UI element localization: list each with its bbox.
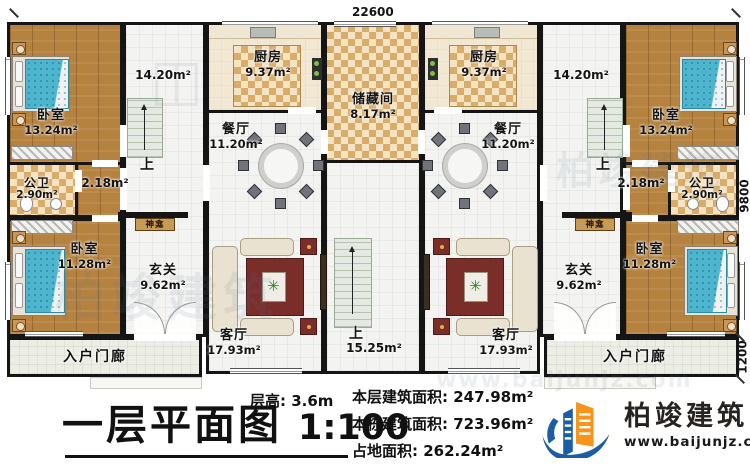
chair [422, 160, 433, 171]
dimension-tick [9, 8, 19, 18]
pillow [727, 283, 735, 308]
door-gap [434, 107, 462, 114]
chair [313, 160, 324, 171]
label-bath-l: 公卫 2.90m² [11, 177, 63, 202]
chair [431, 184, 447, 200]
door-gap [203, 165, 210, 201]
chair [238, 160, 249, 171]
door-gap [668, 170, 675, 192]
label-storage: 储藏间 8.17m² [335, 93, 411, 120]
door-gap [92, 215, 118, 222]
window [25, 331, 83, 337]
page-title: 一层平面图 [62, 403, 282, 448]
brand-text: 柏竣建筑 www.baijunjz.com [624, 402, 750, 451]
label-dining-r: 餐厅 11.20m² [477, 123, 539, 150]
chair [299, 132, 315, 148]
door-gap [288, 107, 316, 114]
window [739, 262, 745, 320]
title-underline [65, 455, 348, 458]
label-living-l: 客厅 17.93m² [200, 329, 268, 356]
shrine-left: 神龛 [135, 218, 175, 231]
stove-icon [312, 58, 322, 80]
mattress [25, 59, 69, 109]
chair [431, 132, 447, 148]
label-bedroom-tl: 卧室 13.24m² [13, 109, 89, 136]
end-table [300, 318, 317, 335]
label-hall-area-l: 14.20m² [130, 69, 196, 82]
door-gap [540, 165, 547, 201]
label-bedroom-br: 卧室 11.28m² [612, 243, 687, 270]
label-foyer-r: 玄关 9.62m² [546, 264, 612, 291]
floorplan-canvas: 神龛 神龛 [0, 0, 750, 468]
dimension-tick [735, 374, 745, 384]
stove-icon [428, 58, 438, 80]
pillow [15, 253, 23, 278]
end-table [300, 238, 317, 255]
tv-icon [320, 254, 327, 310]
door-gap [632, 160, 658, 167]
dimension-right-upper: 9800 [738, 179, 750, 212]
nightstand [723, 42, 737, 55]
bed [679, 56, 737, 112]
window [5, 262, 11, 320]
stair-arrow-icon [604, 110, 605, 150]
window [230, 368, 302, 374]
pillow [15, 61, 23, 82]
nightstand [723, 319, 737, 332]
plant-icon: ✳ [469, 279, 482, 294]
label-bath-r: 公卫 2.90m² [676, 177, 728, 202]
chair [459, 198, 470, 209]
label-porch-l: 入户门廊 [40, 350, 150, 366]
tv-icon [423, 254, 430, 310]
sofa [212, 246, 238, 332]
window [739, 57, 745, 115]
entry-step-left [90, 377, 202, 389]
door-gap [92, 160, 118, 167]
chair [275, 123, 286, 134]
window [5, 57, 11, 115]
chair [299, 184, 315, 200]
wardrobe [677, 146, 739, 160]
label-stair-center-area: 15.25m² [346, 342, 402, 355]
window [334, 21, 396, 27]
window [448, 368, 520, 374]
entry-door-gap-left [134, 334, 196, 341]
label-bedroom-bl: 卧室 11.28m² [47, 243, 122, 270]
sofa [456, 238, 510, 256]
chair [483, 184, 499, 200]
label-dining-l: 餐厅 11.20m² [205, 123, 267, 150]
nightstand [12, 231, 26, 244]
label-kitchen-r: 厨房 9.37m² [446, 51, 522, 78]
round-table [259, 144, 303, 188]
entry-step-right [544, 377, 656, 389]
pillow [15, 283, 23, 308]
shrine-right: 神龛 [575, 218, 615, 231]
stat-floor-height: 层高: 3.6m [250, 390, 333, 411]
dimension-tick [731, 8, 741, 18]
plant-icon: ✳ [267, 279, 280, 294]
label-foyer-l: 玄关 9.62m² [130, 264, 196, 291]
chair [247, 184, 263, 200]
chair [459, 123, 470, 134]
pillow [726, 86, 734, 107]
brand-logo: 柏竣建筑 www.baijunjz.com [536, 394, 750, 458]
label-corridor-l: 2.18m² [80, 177, 130, 190]
chair [275, 198, 286, 209]
window [667, 331, 725, 337]
nightstand [723, 231, 737, 244]
stair-arrow-icon [144, 110, 145, 150]
label-kitchen-l: 厨房 9.37m² [230, 51, 306, 78]
label-hall-area-r: 14.20m² [548, 69, 614, 82]
pillow [15, 86, 23, 107]
brand-logo-icon [536, 394, 616, 458]
label-bedroom-tr: 卧室 13.24m² [628, 109, 704, 136]
brand-name: 柏竣建筑 [624, 402, 750, 432]
stat-floor-area: 本层建筑面积: 247.98m² [352, 386, 533, 407]
sofa [240, 238, 294, 256]
dimension-right-lower: 1200 [736, 340, 750, 373]
stat-building-area: 本栋建筑面积: 723.96m² [352, 413, 533, 434]
entry-door-gap-right [554, 334, 616, 341]
end-table [433, 238, 450, 255]
door-gap [120, 125, 127, 157]
end-table [433, 318, 450, 335]
door-gap [632, 215, 658, 222]
label-porch-r: 入户门廊 [580, 350, 690, 366]
nightstand [723, 113, 737, 126]
pillow [727, 253, 735, 278]
dimension-top-width: 22600 [352, 5, 394, 19]
stair-arrow-icon [352, 252, 353, 314]
mattress [687, 249, 727, 313]
chair [497, 160, 508, 171]
bed [684, 246, 738, 316]
kitchen-sink-icon [250, 27, 276, 38]
pillow [726, 61, 734, 82]
label-stair-up-left: 上 [135, 158, 159, 174]
label-living-r: 客厅 17.93m² [472, 329, 540, 356]
bed [12, 56, 70, 112]
brand-url: www.baijunjz.com [624, 434, 750, 450]
nightstand [12, 42, 26, 55]
label-stair-up-right: 上 [591, 158, 615, 174]
kitchen-sink-icon [474, 27, 500, 38]
label-corridor-r: 2.18m² [616, 177, 666, 190]
sofa [512, 246, 538, 332]
mattress [682, 59, 726, 109]
stat-footprint-area: 占地面积: 262.24m² [352, 440, 503, 461]
wardrobe [11, 146, 73, 160]
nightstand [12, 319, 26, 332]
